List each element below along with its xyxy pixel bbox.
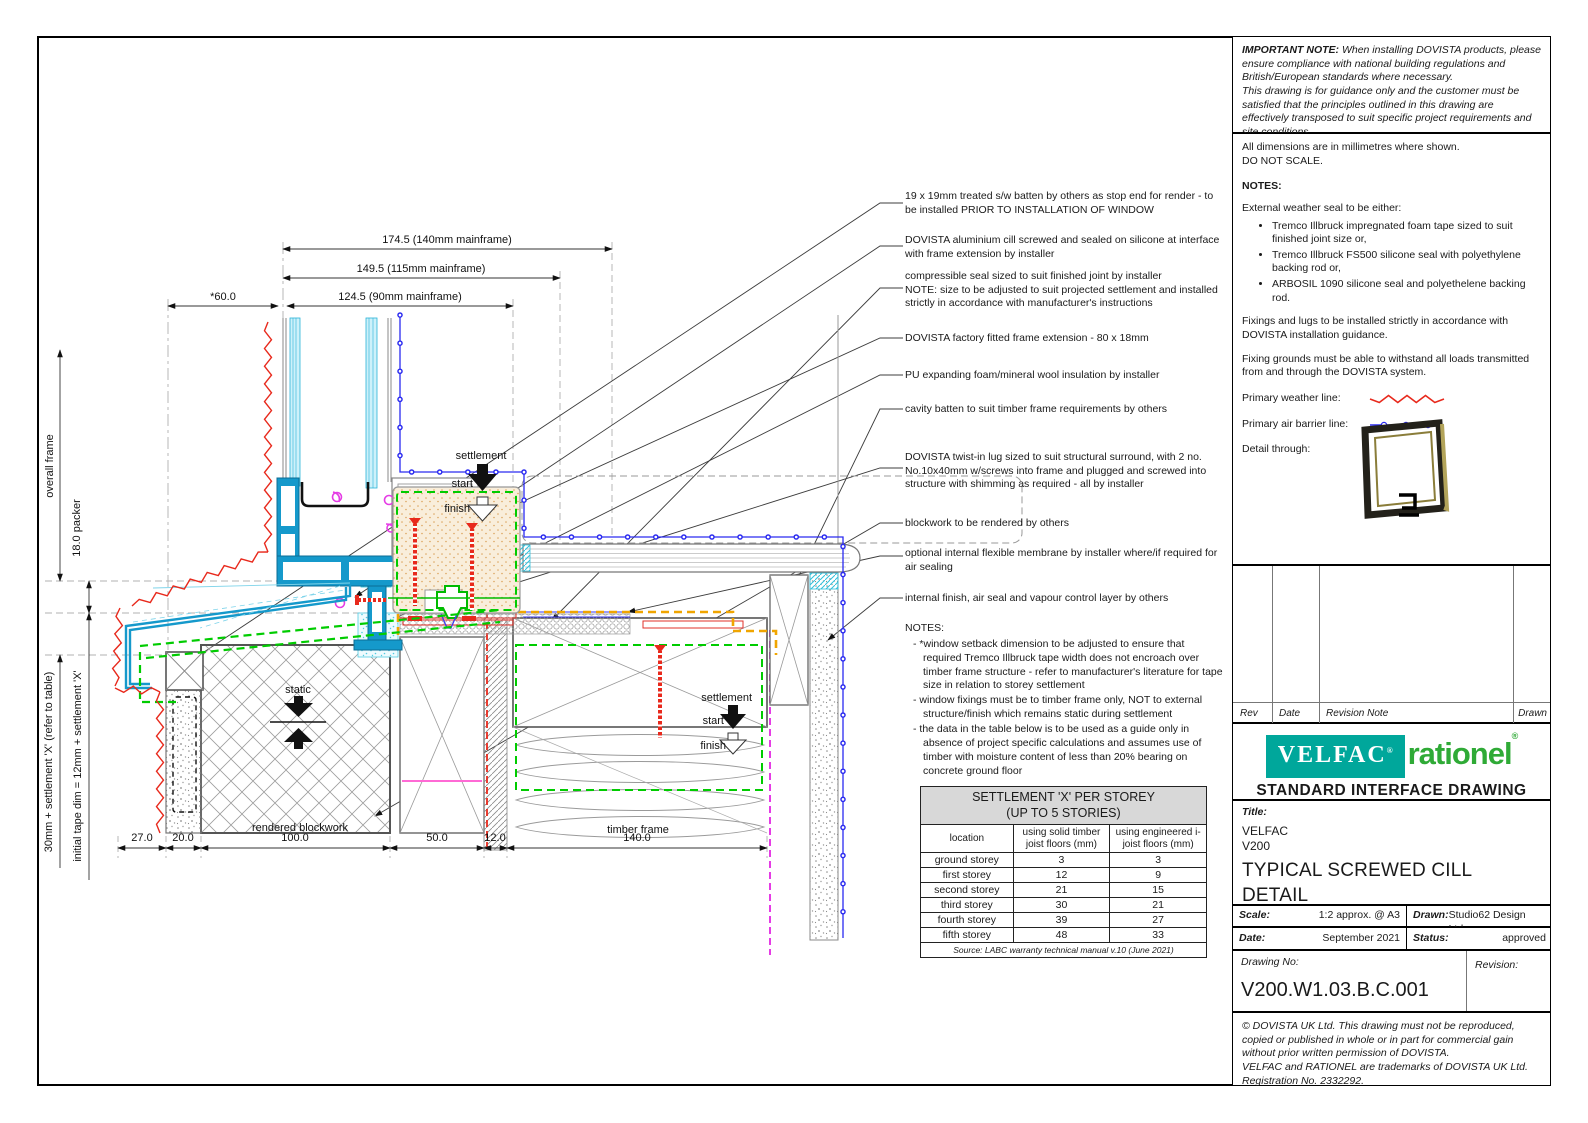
svg-text:start: start <box>703 715 724 727</box>
date-status-row: Date: September 2021 Status: approved <box>1232 927 1551 950</box>
copyright-box: © DOVISTA UK Ltd. This drawing must not … <box>1232 1012 1551 1086</box>
product-name: VELFAC <box>1242 824 1541 840</box>
annotation-batten: 19 x 19mm treated s/w batten by others a… <box>905 190 1221 217</box>
drawing-note: - the data in the table below is to be u… <box>913 723 1223 778</box>
fixings-note: Fixings and lugs to be installed strictl… <box>1242 315 1541 342</box>
annotation-compressible-seal: compressible seal sized to suit finished… <box>905 270 1221 311</box>
svg-text:finish: finish <box>700 740 726 752</box>
revision-table: Rev Date Revision Note Drawn <box>1232 565 1551 723</box>
drawing-note: - *window setback dimension to be adjust… <box>913 638 1223 693</box>
weather-seal-intro: External weather seal to be either: <box>1242 202 1541 216</box>
col-header-solid: using solid timber joist floors (mm) <box>1013 825 1110 853</box>
table-row: second storey2115 <box>921 883 1207 898</box>
list-item: Tremco Illbruck FS500 silicone seal with… <box>1272 249 1541 276</box>
list-item: Tremco Illbruck impregnated foam tape si… <box>1272 220 1541 247</box>
product-series: V200 <box>1242 839 1541 855</box>
rationel-logo: rationel® <box>1408 734 1518 774</box>
table-row: first storey129 <box>921 868 1207 883</box>
scale-label: Scale: <box>1239 909 1270 923</box>
velfac-logo: VELFAC® <box>1266 735 1405 778</box>
svg-text:20.0: 20.0 <box>172 832 193 844</box>
revision-label: Revision: <box>1475 959 1518 973</box>
drawing-notes-heading: NOTES: <box>905 622 1223 636</box>
svg-text:timber frame: timber frame <box>607 824 669 836</box>
important-note-text2: This drawing is for guidance only and th… <box>1242 85 1541 140</box>
fixing-grounds-note: Fixing grounds must be able to withstand… <box>1242 353 1541 380</box>
blockwork <box>166 645 390 833</box>
list-item: ARBOSIL 1090 silicone seal and polyethel… <box>1272 278 1541 305</box>
scale-value: 1:2 approx. @ A3 <box>1319 909 1400 923</box>
glazing-spacer <box>302 482 368 506</box>
col-header-engineered: using engineered i-joist floors (mm) <box>1110 825 1207 853</box>
revision-note-col-label: Revision Note <box>1326 707 1388 720</box>
table-row: fourth storey3927 <box>921 913 1207 928</box>
table-source-note: Source: LABC warranty technical manual v… <box>921 943 1207 958</box>
scale-drawn-row: Scale: 1:2 approx. @ A3 Drawn: Studio62 … <box>1232 905 1551 927</box>
svg-text:12.0: 12.0 <box>484 832 505 844</box>
standard-interface-drawing-label: STANDARD INTERFACE DRAWING <box>1233 781 1550 801</box>
annotation-cavity-batten: cavity batten to suit timber frame requi… <box>905 403 1221 417</box>
page-title: TYPICAL SCREWED CILL DETAIL <box>1242 859 1541 908</box>
svg-text:124.5 (90mm mainframe): 124.5 (90mm mainframe) <box>338 291 462 303</box>
svg-text:finish: finish <box>444 503 470 515</box>
drawing-note: - window fixings must be to timber frame… <box>913 694 1223 722</box>
cavity-hatch-strip <box>484 600 507 850</box>
drawing-no-box: Drawing No: V200.W1.03.B.C.001 Revision: <box>1232 950 1551 1012</box>
svg-text:18.0 packer: 18.0 packer <box>71 499 83 557</box>
annotation-aluminium-cill: DOVISTA aluminium cill screwed and seale… <box>905 234 1221 261</box>
table-row: ground storey33 <box>921 853 1207 868</box>
svg-text:*60.0: *60.0 <box>210 291 236 303</box>
drawing-sheet: 174.5 (140mm mainframe) 149.5 (115mm mai… <box>0 0 1588 1123</box>
annotation-blockwork: blockwork to be rendered by others <box>905 517 1221 531</box>
copyright-text: © DOVISTA UK Ltd. This drawing must not … <box>1242 1020 1541 1061</box>
svg-text:static: static <box>285 684 311 696</box>
status-label: Status: <box>1413 932 1449 946</box>
detail-through-icon <box>1351 416 1461 526</box>
weather-line-legend: Primary weather line: <box>1242 392 1541 406</box>
annotation-internal-finish: internal finish, air seal and vapour con… <box>905 592 1221 606</box>
do-not-scale-note: DO NOT SCALE. <box>1242 155 1541 169</box>
svg-text:settlement: settlement <box>456 450 507 462</box>
drawing-notes-list: - *window setback dimension to be adjust… <box>913 638 1223 779</box>
annotation-pu-foam: PU expanding foam/mineral wool insulatio… <box>905 369 1221 383</box>
svg-text:start: start <box>452 478 473 490</box>
svg-text:30mm + settlement 'X' (refer t: 30mm + settlement 'X' (refer to table) <box>43 672 55 853</box>
internal-finish-board <box>810 315 838 940</box>
dims-note: All dimensions are in millimetres where … <box>1242 141 1541 155</box>
weather-line-sample <box>1367 393 1447 405</box>
date-label: Date: <box>1239 932 1265 946</box>
important-note-box: IMPORTANT NOTE: When installing DOVISTA … <box>1232 36 1551 133</box>
drawing-no-label: Drawing No: <box>1241 956 1299 970</box>
title-label: Title: <box>1242 806 1541 820</box>
svg-text:initial tape dim = 12mm + sett: initial tape dim = 12mm + settlement 'X' <box>72 670 84 861</box>
table-row: fifth storey4833 <box>921 928 1207 943</box>
annotation-twist-in-lug: DOVISTA twist-in lug sized to suit struc… <box>905 451 1221 492</box>
important-note-label: IMPORTANT NOTE: <box>1242 44 1339 56</box>
svg-text:overall frame: overall frame <box>44 434 56 498</box>
general-notes-box: All dimensions are in millimetres where … <box>1232 133 1551 565</box>
annotation-membrane: optional internal flexible membrane by i… <box>905 547 1221 574</box>
cavity-column <box>400 637 484 833</box>
settlement-table: SETTLEMENT 'X' PER STOREY(UP TO 5 STORIE… <box>920 786 1207 958</box>
date-value: September 2021 <box>1322 932 1400 946</box>
svg-text:174.5 (140mm mainframe): 174.5 (140mm mainframe) <box>382 234 512 246</box>
drawing-notes: NOTES: - *window setback dimension to be… <box>905 622 1223 779</box>
annotation-frame-extension: DOVISTA factory fitted frame extension -… <box>905 332 1221 346</box>
drawn-col-label: Drawn <box>1518 707 1547 720</box>
svg-text:rendered blockwork: rendered blockwork <box>252 822 348 834</box>
notes-heading: NOTES: <box>1242 180 1541 194</box>
settlement-table-title: SETTLEMENT 'X' PER STOREY(UP TO 5 STORIE… <box>921 787 1207 825</box>
weather-seal-options: Tremco Illbruck impregnated foam tape si… <box>1242 220 1541 306</box>
svg-text:149.5 (115mm mainframe): 149.5 (115mm mainframe) <box>357 263 486 275</box>
title-box: Title: VELFAC V200 TYPICAL SCREWED CILL … <box>1232 800 1551 905</box>
status-value: approved <box>1502 932 1546 946</box>
drawing-no-value: V200.W1.03.B.C.001 <box>1241 977 1429 1003</box>
svg-text:settlement: settlement <box>701 692 752 704</box>
svg-text:50.0: 50.0 <box>426 832 447 844</box>
date-col-label: Date <box>1279 707 1300 720</box>
svg-text:27.0: 27.0 <box>131 832 152 844</box>
branding-box: VELFAC® rationel® STANDARD INTERFACE DRA… <box>1232 723 1551 800</box>
rev-col-label: Rev <box>1240 707 1258 720</box>
trademark-text: VELFAC and RATIONEL are trademarks of DO… <box>1242 1061 1541 1088</box>
table-row: third storey3021 <box>921 898 1207 913</box>
col-header-location: location <box>921 825 1014 853</box>
